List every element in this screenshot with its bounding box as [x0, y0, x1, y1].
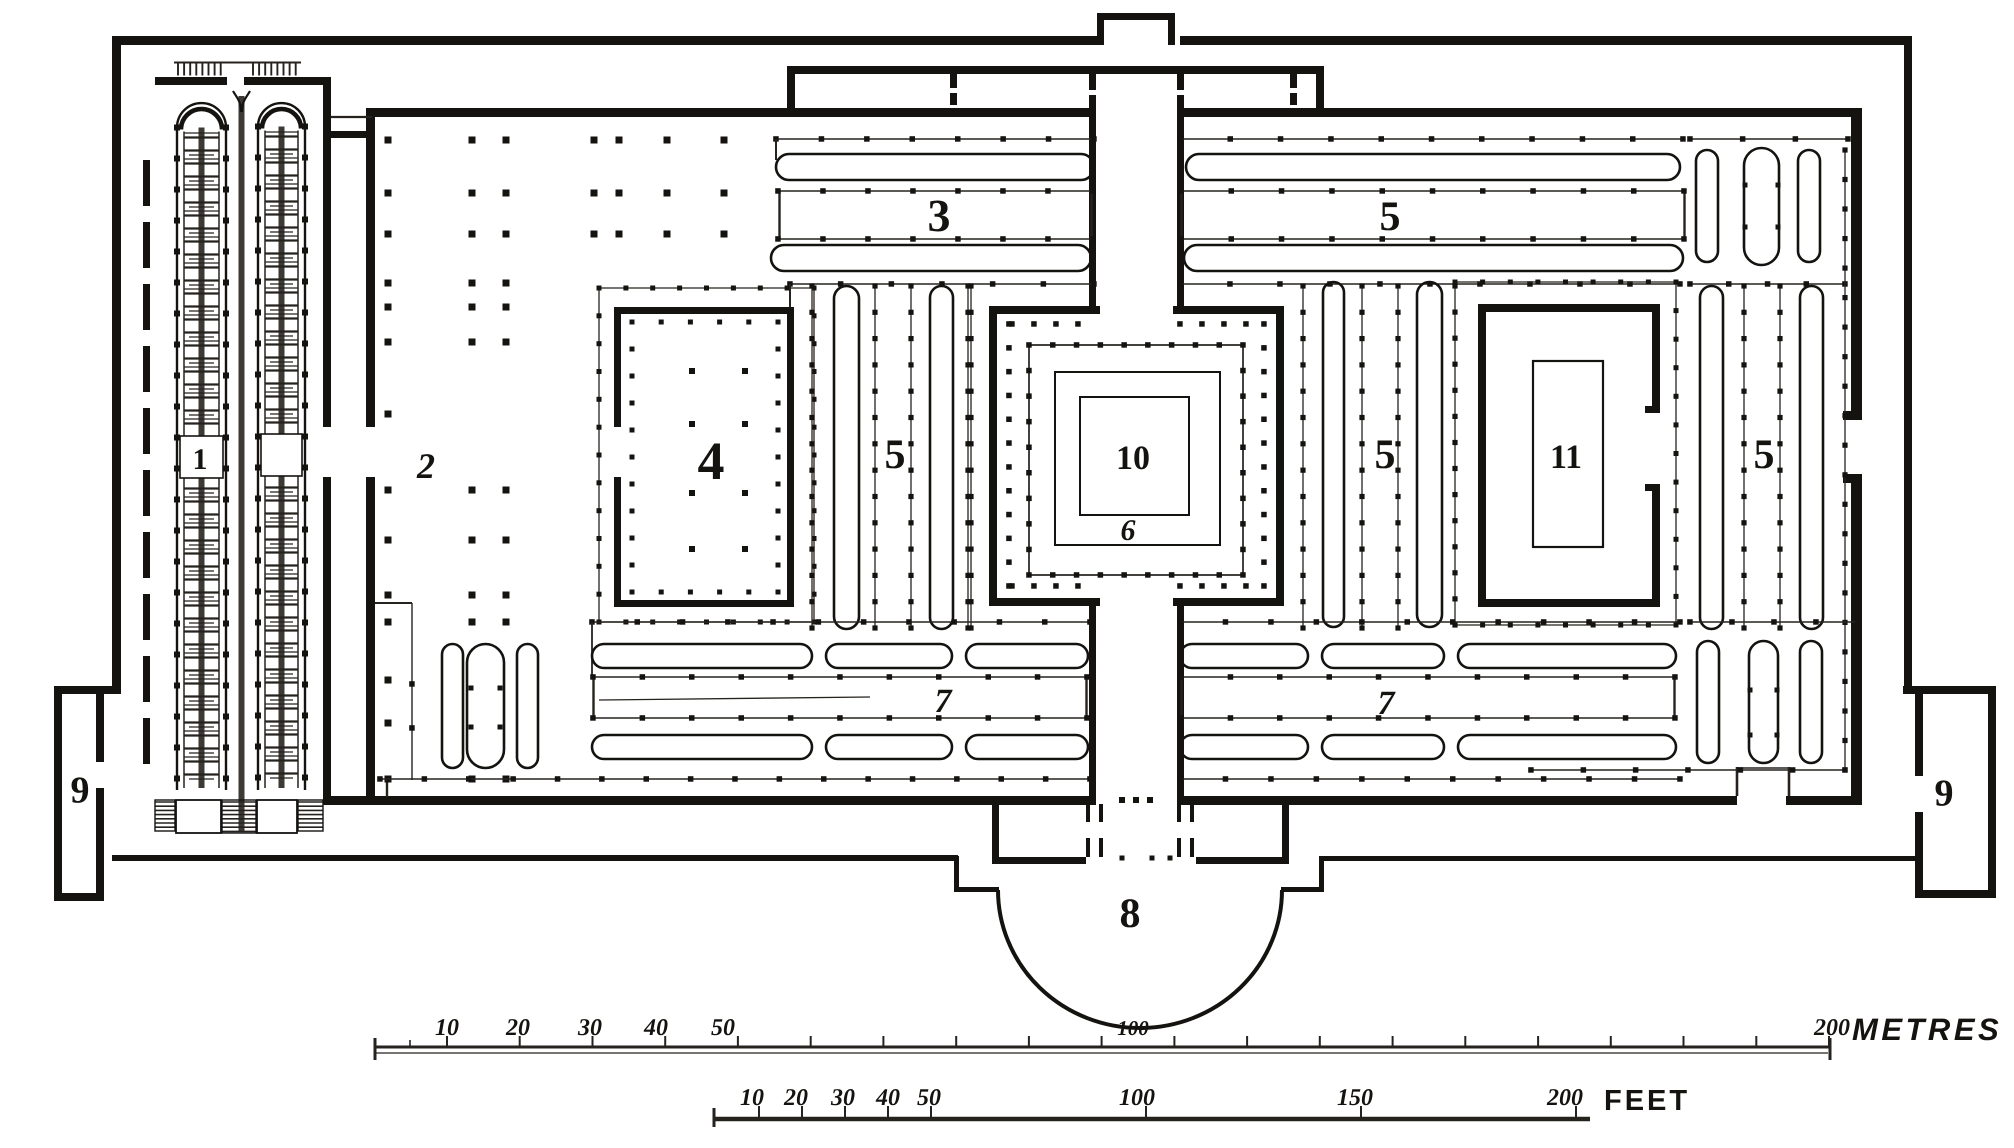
- svg-text:5: 5: [1380, 194, 1401, 240]
- svg-text:9: 9: [71, 770, 90, 812]
- svg-text:30: 30: [830, 1085, 855, 1111]
- svg-text:100: 100: [1119, 1085, 1155, 1111]
- svg-text:FEET: FEET: [1604, 1085, 1690, 1117]
- svg-text:10: 10: [1116, 440, 1150, 477]
- svg-text:30: 30: [577, 1015, 602, 1041]
- svg-text:10: 10: [435, 1015, 459, 1041]
- svg-text:50: 50: [917, 1085, 941, 1111]
- svg-text:200: 200: [1813, 1015, 1850, 1041]
- svg-text:4: 4: [698, 431, 725, 491]
- svg-text:20: 20: [783, 1085, 808, 1111]
- svg-text:5: 5: [885, 432, 906, 478]
- svg-text:3: 3: [928, 190, 951, 241]
- svg-text:200: 200: [1546, 1085, 1583, 1111]
- svg-text:40: 40: [643, 1015, 668, 1041]
- svg-text:METRES: METRES: [1852, 1012, 2002, 1047]
- svg-text:6: 6: [1121, 514, 1136, 547]
- svg-text:5: 5: [1754, 432, 1775, 478]
- svg-text:150: 150: [1337, 1085, 1373, 1111]
- svg-text:5: 5: [1375, 432, 1396, 478]
- svg-text:40: 40: [875, 1085, 900, 1111]
- svg-text:9: 9: [1935, 773, 1954, 815]
- svg-text:7: 7: [1378, 685, 1397, 722]
- svg-text:100: 100: [1117, 1016, 1149, 1040]
- svg-text:8: 8: [1120, 891, 1141, 937]
- svg-text:7: 7: [935, 683, 954, 720]
- svg-text:10: 10: [740, 1085, 764, 1111]
- svg-text:50: 50: [711, 1015, 735, 1041]
- svg-text:20: 20: [505, 1015, 530, 1041]
- svg-text:11: 11: [1550, 439, 1582, 476]
- svg-text:2: 2: [416, 446, 435, 486]
- svg-text:1: 1: [193, 443, 208, 476]
